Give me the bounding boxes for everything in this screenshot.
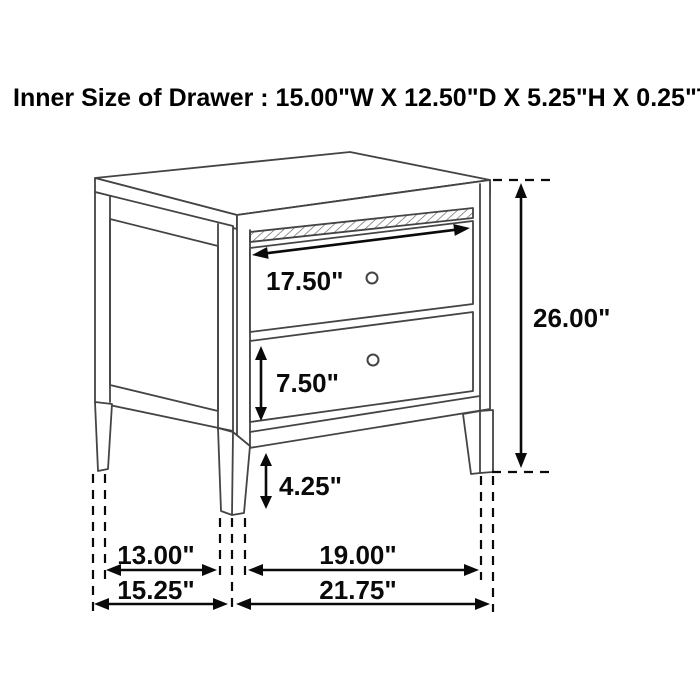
leg-height-label: 4.25" [279,471,342,501]
overall-height-label: 26.00" [533,303,610,333]
dimension-diagram-page: Inner Size of Drawer : 15.00"W X 12.50"D… [0,0,700,700]
side-panel [95,192,233,431]
leg-back-left [95,402,112,471]
overall-depth-label: 15.25" [117,575,194,605]
dimension-leg-height [260,453,272,509]
drawer-width-label: 17.50" [266,266,343,296]
leg-front-right [463,410,493,474]
leg-front-left-corner [232,432,233,515]
dimension-overall-height [515,183,527,468]
leg-span-depth-label: 13.00" [117,540,194,570]
nightstand-dimension-diagram: 17.50" 7.50" 4.25" 26.00" 13.00" 19.00" … [0,0,700,700]
leg-span-width-label: 19.00" [319,540,396,570]
nightstand-drawing [95,152,493,515]
drawer-2-knob [368,355,379,366]
drawer-height-label: 7.50" [276,368,339,398]
leg-front-left [218,428,250,515]
drawer-1-knob [367,273,378,284]
overall-width-label: 21.75" [319,575,396,605]
